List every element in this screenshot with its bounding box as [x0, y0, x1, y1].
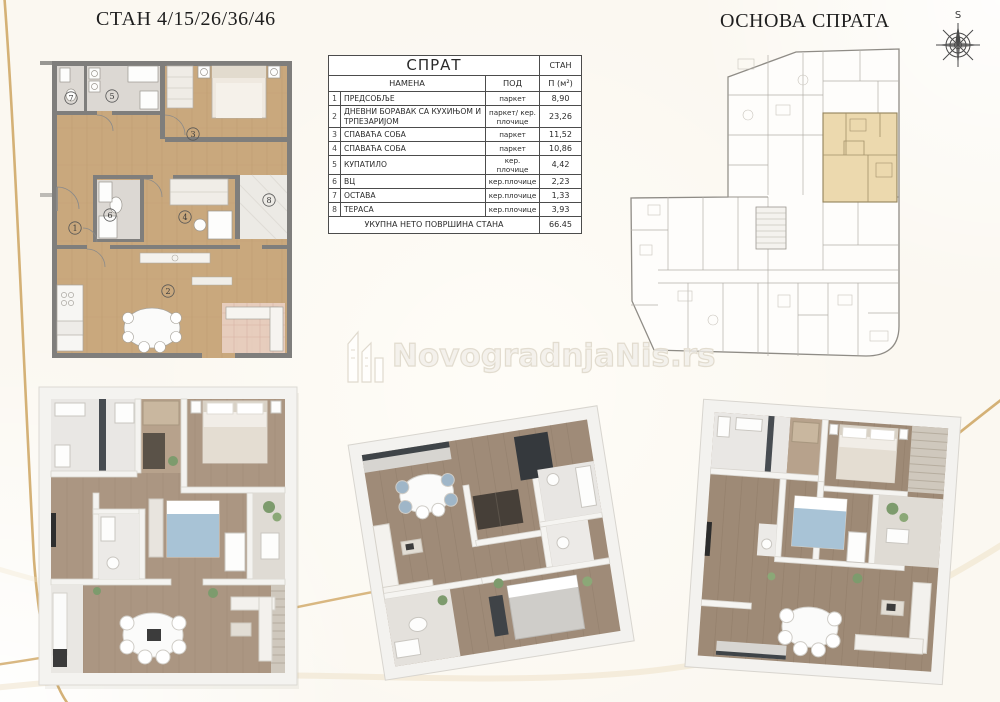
row-no: 8	[329, 203, 341, 217]
row-area: 11,52	[540, 128, 582, 142]
row-name: ВЦ	[341, 175, 486, 189]
room-8-floor	[240, 175, 287, 239]
table-row: 3 СПАВАЋА СОБА паркет 11,52	[329, 128, 582, 142]
row-floor: паркет/ кер. плочице	[486, 106, 540, 128]
compass-north-label: S	[955, 10, 961, 21]
row-no: 3	[329, 128, 341, 142]
row-no: 4	[329, 142, 341, 156]
room-label-1: 1	[72, 224, 77, 233]
plan-sheet: СТАН 4/15/26/36/46 ОСНОВА СПРАТА S	[0, 0, 1000, 702]
room-label-8: 8	[266, 196, 271, 205]
row-floor: паркет	[486, 92, 540, 106]
table-row: 4 СПАВАЋА СОБА паркет 10,86	[329, 142, 582, 156]
watermark-text: NovogradnjaNis.rs	[392, 338, 716, 374]
row-area: 23,26	[540, 106, 582, 128]
table-row: 1 ПРЕДСОБЉЕ паркет 8,90	[329, 92, 582, 106]
row-floor: паркет	[486, 128, 540, 142]
room-label-5: 5	[109, 92, 114, 101]
table-footer-row: УКУПНА НЕТО ПОВРШИНА СТАНА 66.45	[329, 217, 582, 234]
row-area: 2,23	[540, 175, 582, 189]
row-floor: кер.плочице	[486, 175, 540, 189]
row-area: 3,93	[540, 203, 582, 217]
row-floor: паркет	[486, 142, 540, 156]
row-name: ТЕРАСА	[341, 203, 486, 217]
col-header-area: П (м²)	[540, 76, 582, 92]
watermark: NovogradnjaNis.rs	[342, 328, 716, 384]
header-sprat: СПРАТ	[329, 56, 540, 76]
row-area: 10,86	[540, 142, 582, 156]
total-value: 66.45	[540, 217, 582, 234]
table-row: 2 ДНЕВНИ БОРАВАК СА КУХИЊОМ И ТРПЕЗАРИЈО…	[329, 106, 582, 128]
room-label-7: 7	[68, 94, 73, 103]
render-3d-top-view	[35, 383, 301, 691]
render-3d-rotated-view	[330, 386, 652, 698]
row-name: ОСТАВА	[341, 189, 486, 203]
row-area: 1,33	[540, 189, 582, 203]
compass-icon: S	[927, 8, 989, 72]
row-no: 7	[329, 189, 341, 203]
row-floor: кер.плочице	[486, 189, 540, 203]
col-header-floor: ПОД	[486, 76, 540, 92]
table-header-row: СПРАТ СТАН	[329, 56, 582, 76]
row-no: 2	[329, 106, 341, 128]
row-name: ДНЕВНИ БОРАВАК СА КУХИЊОМ И ТРПЕЗАРИЈОМ	[341, 106, 486, 128]
row-no: 6	[329, 175, 341, 189]
novogradnja-logo-icon	[342, 328, 388, 384]
table-row: 7 ОСТАВА кер.плочице 1,33	[329, 189, 582, 203]
room-label-4: 4	[182, 213, 187, 222]
col-header-name: НАМЕНА	[329, 76, 486, 92]
table-row: 6 ВЦ кер.плочице 2,23	[329, 175, 582, 189]
row-floor: кер. плочице	[486, 156, 540, 175]
room-label-6: 6	[107, 211, 112, 220]
row-name: ПРЕДСОБЉЕ	[341, 92, 486, 106]
floor-plan-2d: 7 5 3 1 6 4 8 2	[40, 53, 312, 369]
building-floor-overview	[628, 45, 906, 363]
row-floor: кер.плочице	[486, 203, 540, 217]
row-name: КУПАТИЛО	[341, 156, 486, 175]
room-spec-table: СПРАТ СТАН НАМЕНА ПОД П (м²) 1 ПРЕДСОБЉЕ…	[328, 55, 582, 234]
row-no: 1	[329, 92, 341, 106]
room-label-3: 3	[190, 130, 195, 139]
highlighted-unit[interactable]	[823, 113, 897, 202]
table-subheader-row: НАМЕНА ПОД П (м²)	[329, 76, 582, 92]
row-name: СПАВАЋА СОБА	[341, 142, 486, 156]
row-area: 8,90	[540, 92, 582, 106]
room-label-2: 2	[165, 287, 170, 296]
header-stan: СТАН	[540, 56, 582, 76]
row-no: 5	[329, 156, 341, 175]
stair-core	[756, 207, 786, 249]
table-row: 8 ТЕРАСА кер.плочице 3,93	[329, 203, 582, 217]
table-row: 5 КУПАТИЛО кер. плочице 4,42	[329, 156, 582, 175]
floor-base-title: ОСНОВА СПРАТА	[720, 10, 890, 33]
row-name: СПАВАЋА СОБА	[341, 128, 486, 142]
total-label: УКУПНА НЕТО ПОВРШИНА СТАНА	[329, 217, 540, 234]
row-area: 4,42	[540, 156, 582, 175]
apartment-title: СТАН 4/15/26/36/46	[96, 8, 276, 31]
render-3d-angled-view	[664, 380, 984, 702]
